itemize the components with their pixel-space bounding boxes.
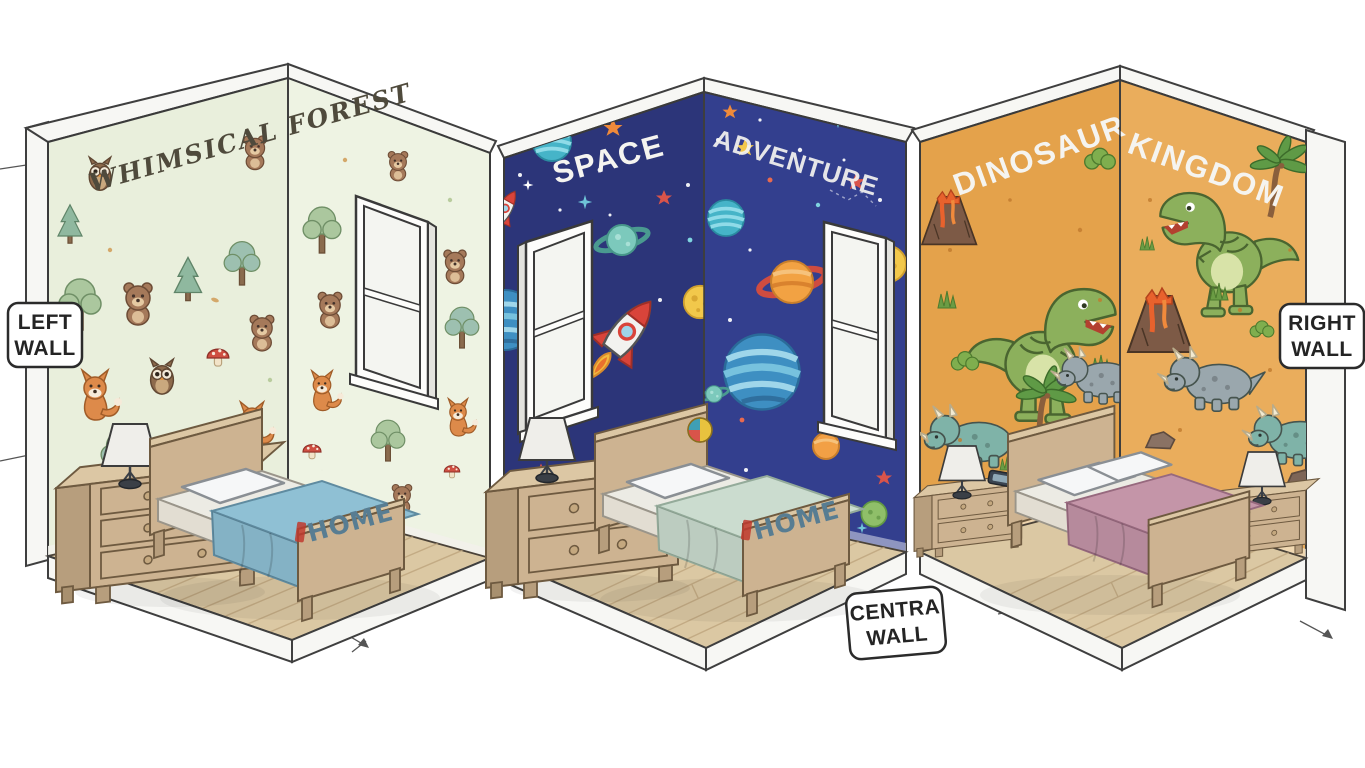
room-whimsical-forest: WHIMSICAL FOREST HOME xyxy=(0,64,551,739)
label-right-wall-line2: WALL xyxy=(1291,338,1352,361)
window xyxy=(518,221,598,442)
mockup-scene: WHIMSICAL FOREST HOME xyxy=(0,0,1365,768)
label-left-wall-line1: LEFT xyxy=(18,311,73,334)
toy-ball xyxy=(688,418,712,442)
window xyxy=(818,222,896,450)
label-left-wall: LEFT WALL xyxy=(8,303,82,367)
wallpaper-mockup-canvas: WHIMSICAL FOREST HOME xyxy=(0,0,1365,768)
label-right-wall: RIGHT WALL xyxy=(1280,304,1364,368)
window xyxy=(350,196,438,409)
board-edge-right xyxy=(1306,130,1345,610)
label-left-wall-line2: WALL xyxy=(14,337,75,360)
label-right-wall-line1: RIGHT xyxy=(1288,312,1356,335)
label-central-wall: CENTRA WALL xyxy=(845,586,946,660)
